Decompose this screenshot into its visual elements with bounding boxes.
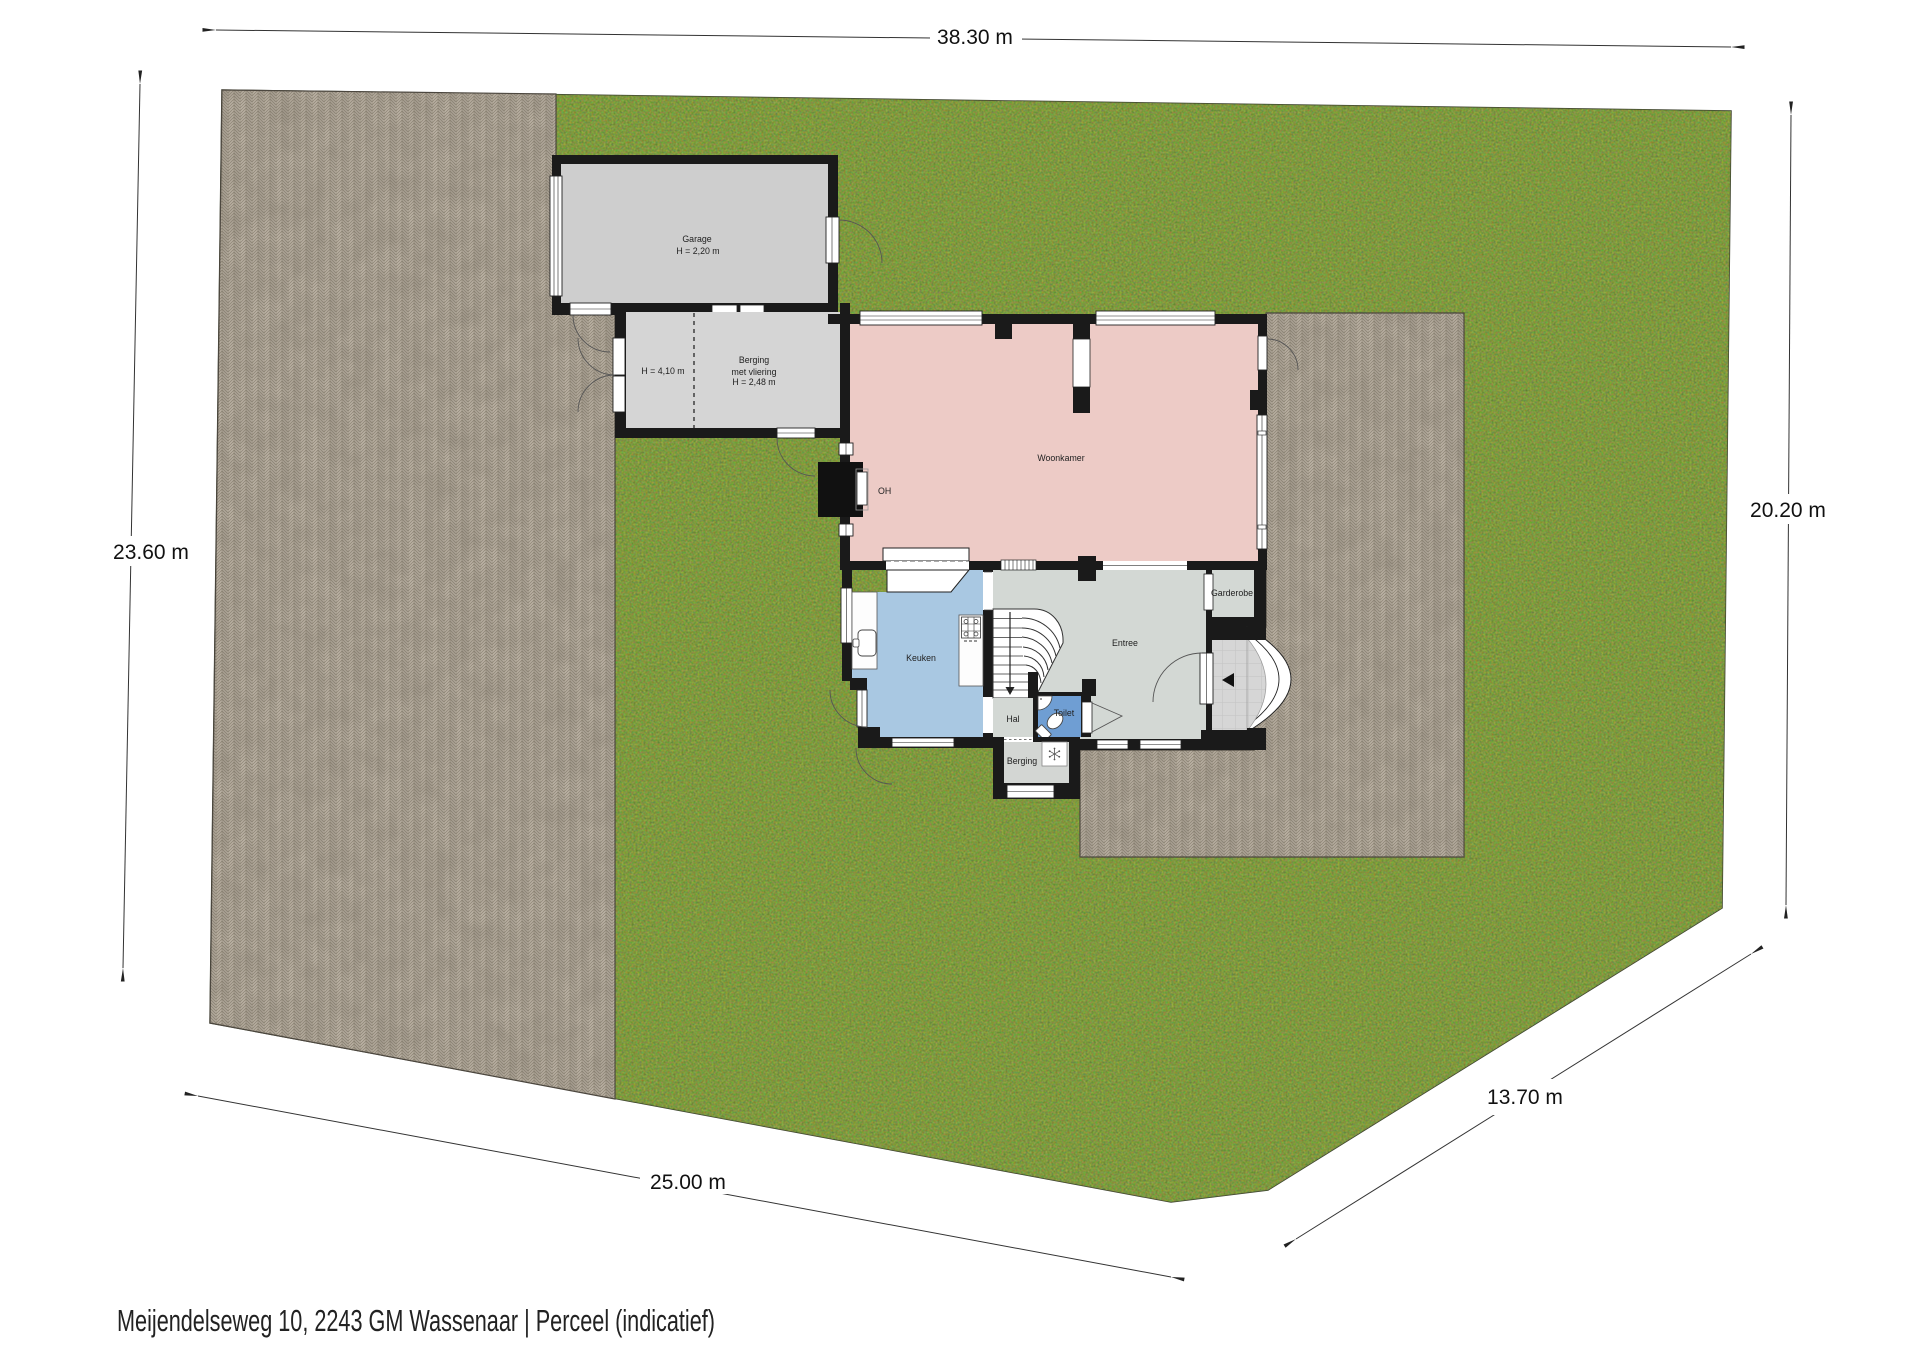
svg-text:13.70 m: 13.70 m bbox=[1487, 1086, 1563, 1109]
svg-text:Garderobe: Garderobe bbox=[1211, 588, 1253, 598]
svg-text:H = 2,48 m: H = 2,48 m bbox=[732, 377, 775, 387]
svg-text:38.30 m: 38.30 m bbox=[937, 26, 1013, 49]
svg-text:H = 4,10 m: H = 4,10 m bbox=[641, 366, 684, 376]
svg-text:23.60 m: 23.60 m bbox=[113, 541, 189, 564]
svg-text:Entree: Entree bbox=[1112, 638, 1138, 648]
svg-text:Hal: Hal bbox=[1006, 714, 1019, 724]
svg-text:Garage: Garage bbox=[682, 234, 711, 244]
svg-text:Keuken: Keuken bbox=[906, 653, 936, 663]
svg-text:met vliering: met vliering bbox=[732, 367, 777, 377]
svg-text:Berging: Berging bbox=[739, 355, 769, 365]
svg-text:20.20 m: 20.20 m bbox=[1750, 499, 1826, 522]
svg-text:Meijendelseweg 10, 2243 GM Was: Meijendelseweg 10, 2243 GM Wassenaar | P… bbox=[117, 1304, 715, 1338]
svg-text:H = 2,20 m: H = 2,20 m bbox=[676, 246, 719, 256]
svg-text:Woonkamer: Woonkamer bbox=[1037, 453, 1084, 463]
svg-text:OH: OH bbox=[878, 486, 891, 496]
svg-text:Toilet: Toilet bbox=[1054, 708, 1075, 718]
svg-text:25.00 m: 25.00 m bbox=[650, 1171, 726, 1194]
svg-text:Berging: Berging bbox=[1007, 756, 1037, 766]
